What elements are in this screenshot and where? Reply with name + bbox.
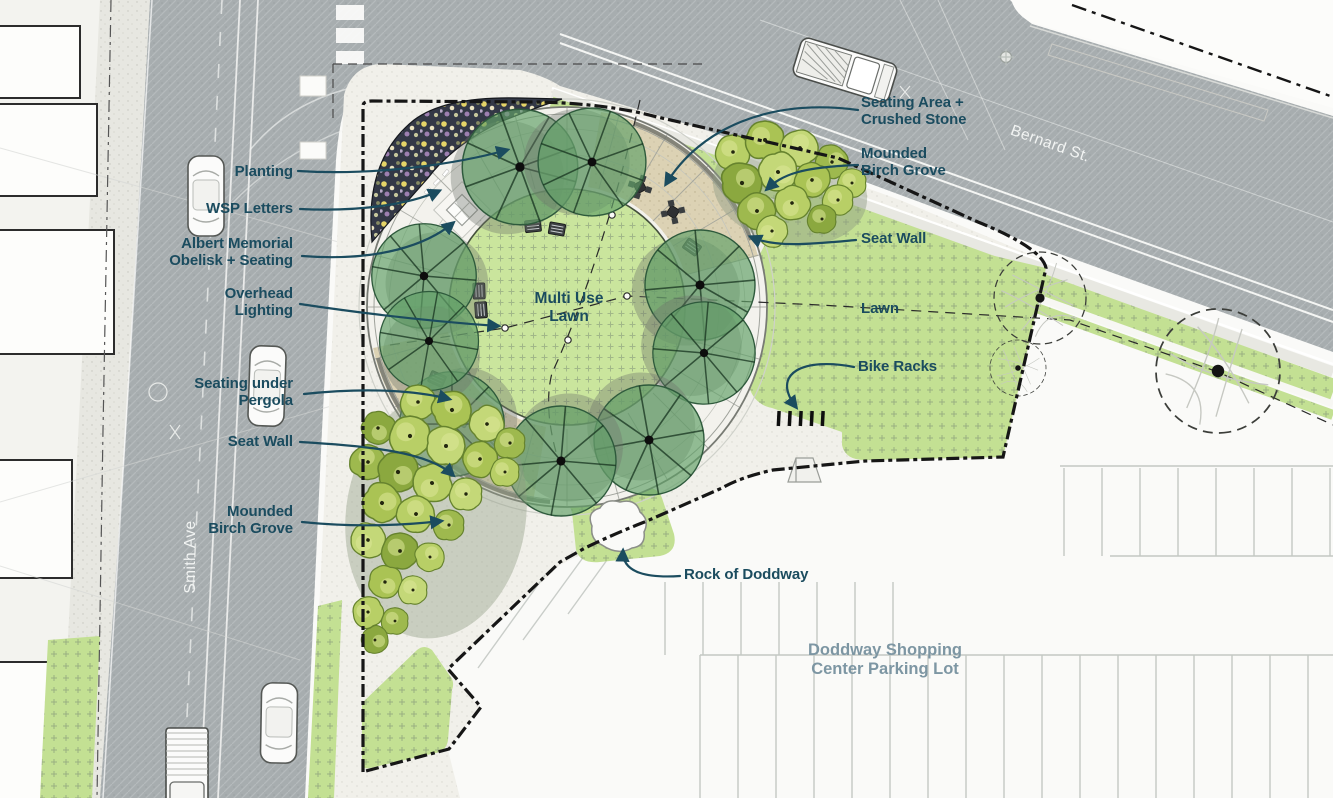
crosswalk xyxy=(336,5,364,64)
label-lawn: Lawn xyxy=(861,301,1036,318)
callout-albert-memorial: Albert Memorial Obelisk + Seating xyxy=(143,236,293,270)
label-smith-ave: Smith Ave xyxy=(182,512,200,602)
car xyxy=(260,683,297,764)
callout-overhead-lighting: Overhead Lighting xyxy=(143,286,293,320)
callout-seat-wall-east: Seat Wall xyxy=(861,231,1036,248)
callout-birch-grove-south: Mounded Birch Grove xyxy=(143,504,293,538)
callout-planting: Planting xyxy=(143,164,293,181)
label-multi-use-lawn: Multi Use Lawn xyxy=(507,290,631,326)
callout-bike-racks: Bike Racks xyxy=(858,359,1033,376)
callout-rock-of-doddway: Rock of Doddway xyxy=(684,567,824,584)
site-plan-canvas: Planting WSP Letters Albert Memorial Obe… xyxy=(0,0,1333,798)
callout-seating-area-crushed-stone: Seating Area + Crushed Stone xyxy=(861,95,1036,129)
box-truck xyxy=(166,728,208,798)
callout-seat-wall-west: Seat Wall xyxy=(143,434,293,451)
callout-wsp-letters: WSP Letters xyxy=(143,201,293,218)
callout-birch-grove-north: Mounded Birch Grove xyxy=(861,146,1036,180)
label-parking-lot: Doddway Shopping Center Parking Lot xyxy=(793,641,977,679)
west-parkway-strip xyxy=(40,636,100,798)
callout-seating-under-pergola: Seating under Pergola xyxy=(143,376,293,410)
